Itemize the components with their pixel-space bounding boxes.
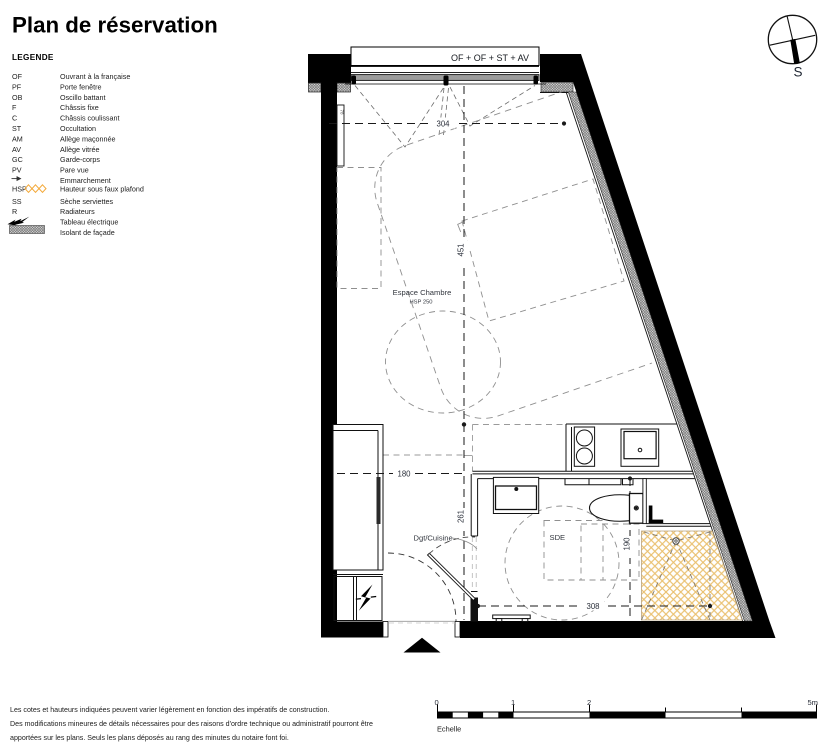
svg-text:308: 308 — [586, 602, 599, 611]
svg-text:Ouvrant à la française: Ouvrant à la française — [60, 72, 130, 81]
svg-text:451: 451 — [457, 243, 466, 256]
svg-text:0: 0 — [435, 698, 439, 707]
svg-text:F: F — [12, 103, 17, 112]
svg-text:Plan de réservation: Plan de réservation — [12, 13, 218, 38]
svg-text:Porte fenêtre: Porte fenêtre — [60, 82, 102, 91]
svg-text:Garde-corps: Garde-corps — [60, 155, 100, 164]
svg-text:Allège vitrée: Allège vitrée — [60, 145, 100, 154]
svg-text:Radiateurs: Radiateurs — [60, 207, 95, 216]
svg-text:C: C — [12, 114, 17, 123]
svg-text:GC: GC — [12, 155, 23, 164]
svg-text:Tableau électrique: Tableau électrique — [60, 218, 118, 227]
svg-text:Occultation: Occultation — [60, 124, 96, 133]
svg-text:180: 180 — [397, 470, 411, 479]
svg-text:OF + OF + ST + AV: OF + OF + ST + AV — [451, 53, 529, 63]
svg-text:apportées sur les plans. Seuls: apportées sur les plans. Seuls les plans… — [10, 734, 289, 742]
svg-text:Espace Chambre: Espace Chambre — [393, 288, 452, 297]
svg-text:OF: OF — [12, 72, 23, 81]
svg-text:Oscillo battant: Oscillo battant — [60, 93, 106, 102]
svg-text:Les cotes et hauteurs indiquée: Les cotes et hauteurs indiquées peuvent … — [10, 706, 329, 714]
svg-text:LEGENDE: LEGENDE — [12, 53, 54, 62]
svg-text:HSP 250: HSP 250 — [409, 300, 432, 306]
svg-text:PV: PV — [12, 166, 22, 175]
svg-text:S: S — [793, 65, 802, 80]
svg-text:261: 261 — [457, 510, 466, 523]
svg-text:304: 304 — [436, 119, 450, 128]
svg-text:OB: OB — [12, 93, 23, 102]
svg-text:190: 190 — [623, 537, 632, 551]
svg-text:Dgt/Cuisine: Dgt/Cuisine — [414, 534, 453, 543]
svg-text:Sèche serviettes: Sèche serviettes — [60, 197, 114, 206]
svg-text:Châssis fixe: Châssis fixe — [60, 103, 99, 112]
svg-text:Hauteur sous faux plafond: Hauteur sous faux plafond — [60, 185, 144, 194]
svg-text:Pare vue: Pare vue — [60, 166, 89, 175]
svg-text:Allège maçonnée: Allège maçonnée — [60, 134, 116, 143]
svg-text:SDE: SDE — [550, 533, 566, 542]
svg-text:ST: ST — [12, 124, 22, 133]
svg-text:Châssis coulissant: Châssis coulissant — [60, 114, 120, 123]
svg-text:AV: AV — [12, 145, 21, 154]
svg-text:SS: SS — [12, 197, 22, 206]
svg-text:PF: PF — [12, 82, 22, 91]
svg-text:R: R — [12, 207, 17, 216]
svg-text:Echelle: Echelle — [437, 725, 461, 734]
svg-text:Des modifications mineures de: Des modifications mineures de détails né… — [10, 720, 373, 728]
svg-text:AM: AM — [12, 134, 23, 143]
svg-text:Isolant de façade: Isolant de façade — [60, 228, 115, 237]
svg-text:78: 78 — [340, 110, 345, 116]
